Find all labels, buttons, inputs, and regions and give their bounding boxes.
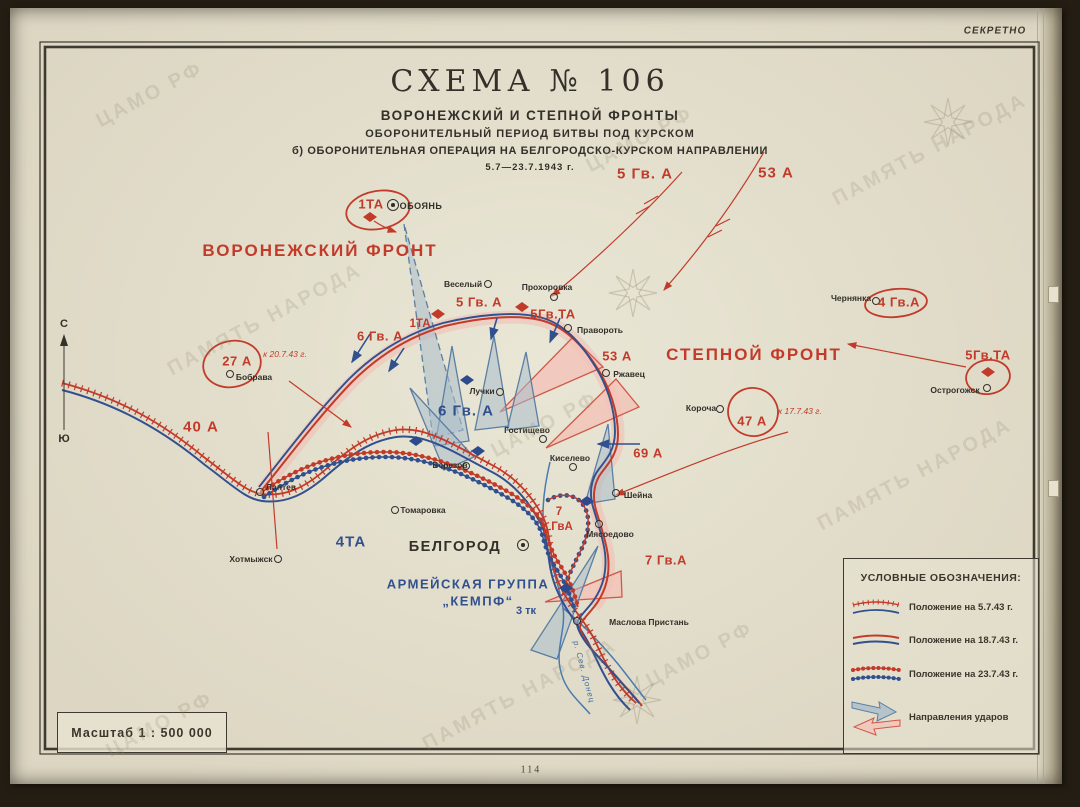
town-marker <box>256 488 264 496</box>
map-label: 1ТА <box>358 197 383 212</box>
map-label: 5Гв.ТА <box>965 348 1010 363</box>
map-label: ГвА <box>551 521 573 533</box>
town-label: Шейна <box>624 490 652 500</box>
town-marker <box>391 506 399 514</box>
town-label: Хотмыжск <box>229 554 272 564</box>
map-label: 4ТА <box>336 534 366 551</box>
scanned-map-sheet: СЕКРЕТНО <box>0 0 1080 807</box>
tank-unit-blue-icon <box>460 375 474 385</box>
town-marker <box>274 555 282 563</box>
town-marker <box>484 280 492 288</box>
legend-item-position-5-7: Положение на 5.7.43 г. <box>850 597 1038 617</box>
compass-arrow <box>60 334 68 430</box>
town-marker <box>496 388 504 396</box>
town-marker <box>573 617 581 625</box>
tank-unit-red-icon <box>515 302 529 312</box>
compass-north-label: С <box>60 318 68 330</box>
tank-unit-red-icon <box>363 212 377 222</box>
map-label: 40 А <box>183 419 219 436</box>
compass-south-label: Ю <box>58 433 69 445</box>
map-label: 3 тк <box>516 605 536 617</box>
town-label: ОБОЯНЬ <box>400 201 443 211</box>
map-label: ВОРОНЕЖСКИЙ ФРОНТ <box>202 241 437 261</box>
map-label: 6 Гв. А <box>438 403 494 420</box>
town-label: Веселый <box>444 279 482 289</box>
town-label: Бобрава <box>236 372 272 382</box>
town-marker <box>517 539 529 551</box>
town-label: Правороть <box>577 325 623 335</box>
map-label: 5 Гв. А <box>456 295 502 310</box>
map-label: 53 А <box>602 349 631 364</box>
town-label: Чернянка <box>831 293 871 303</box>
line-23-7-43-icon <box>850 663 902 685</box>
map-label: 5Гв.ТА <box>530 307 575 322</box>
map-label: 27 А <box>222 354 251 369</box>
town-marker <box>983 384 991 392</box>
map-label: „КЕМПФ“ <box>442 594 513 609</box>
legend-item-position-23-7: Положение на 23.7.43 г. <box>850 663 1038 685</box>
map-label: 7 <box>556 506 562 518</box>
town-label: Киселево <box>550 453 590 463</box>
legend-panel: УСЛОВНЫЕ ОБОЗНАЧЕНИЯ: Положение на 5.7.4… <box>843 558 1039 754</box>
town-marker <box>595 520 603 528</box>
map-label: 69 А <box>633 446 662 461</box>
tank-unit-red-icon <box>431 309 445 319</box>
town-marker <box>226 370 234 378</box>
town-label: Березов <box>432 460 467 470</box>
map-label: 53 А <box>758 165 794 182</box>
town-label: Лаптев <box>266 482 296 492</box>
town-label: Лучки <box>469 386 494 396</box>
town-marker <box>550 293 558 301</box>
line-5-7-43-icon <box>850 597 902 617</box>
attack-arrows-icon <box>850 698 902 736</box>
town-marker <box>387 199 399 211</box>
map-label: АРМЕЙСКАЯ ГРУППА <box>387 577 549 592</box>
town-label: БЕЛГОРОД <box>409 539 501 555</box>
map-label: 5 Гв. А <box>617 166 673 183</box>
town-label: Прохоровка <box>522 282 573 292</box>
map-label: 6 Гв. А <box>357 329 403 344</box>
map-label: СТЕПНОЙ ФРОНТ <box>666 345 842 365</box>
legend-item-position-18-7: Положение на 18.7.43 г. <box>850 630 1038 650</box>
town-marker <box>569 463 577 471</box>
town-marker <box>564 324 572 332</box>
map-label: 7 Гв.А <box>645 553 687 568</box>
town-marker <box>602 369 610 377</box>
town-label: Острогожск <box>930 385 979 395</box>
town-marker <box>612 489 620 497</box>
town-label: Томаровка <box>400 505 445 515</box>
line-18-7-43-icon <box>850 630 902 650</box>
legend-title: УСЛОВНЫЕ ОБОЗНАЧЕНИЯ: <box>844 572 1038 584</box>
town-marker <box>716 405 724 413</box>
map-label: 4 Гв.А <box>878 295 920 310</box>
town-label: Короча <box>686 403 716 413</box>
map-label: 1ТА <box>409 318 430 330</box>
map-label: 47 А <box>737 414 766 429</box>
town-label: Ржавец <box>613 369 645 379</box>
map-label: к 20.7.43 г. <box>263 349 307 359</box>
legend-item-attack-directions: Направления ударов <box>850 698 1038 736</box>
map-label: к 17.7.43 г. <box>778 406 822 416</box>
town-label: Маслова Пристань <box>609 617 689 627</box>
tank-unit-red-icon <box>981 367 995 377</box>
town-label: Мясоедово <box>586 529 634 539</box>
